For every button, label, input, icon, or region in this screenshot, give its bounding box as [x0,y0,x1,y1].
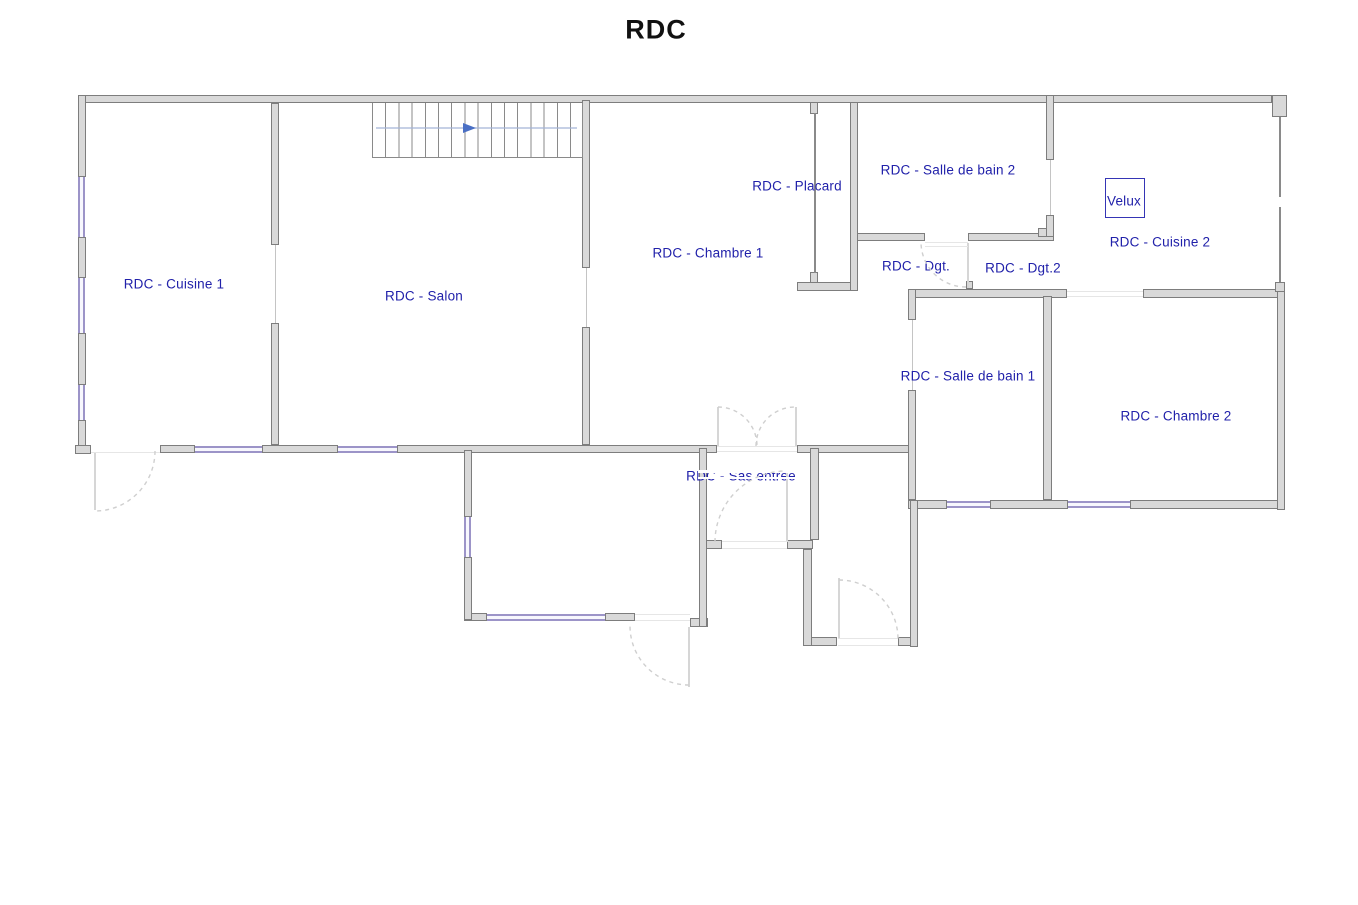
room-label-placard: RDC - Placard [752,179,842,194]
room-label-dgt: RDC - Dgt. [882,259,950,274]
window [464,517,471,557]
page-title: RDC [625,15,687,46]
window [78,385,85,420]
door-leaf-line [838,578,840,638]
wall-segment [75,445,91,454]
threshold-line [1067,296,1143,297]
door-opening-line [586,268,587,327]
wall-segment [1130,500,1285,509]
wall-segment [262,445,338,453]
threshold-line [717,451,797,452]
door-swing-arc [95,451,155,511]
wall-segment [1277,289,1285,510]
door-swing-arc [839,580,898,639]
wall-segment [803,549,812,646]
threshold-line [925,246,968,247]
window [1068,501,1130,508]
door-leaf-line [717,407,719,447]
wall-segment [1275,282,1285,292]
wall-segment [78,95,86,177]
door-swing-arc [756,407,795,446]
wall-segment [464,450,472,517]
threshold-line [838,645,898,646]
door-swing-arc [718,407,757,446]
wall-segment [910,500,918,647]
room-label-cuisine-2: RDC - Cuisine 2 [1110,235,1211,250]
wall-segment [908,289,916,320]
partition-line [1279,207,1281,282]
window [947,501,990,508]
door-opening-line [275,245,276,323]
wall-segment [582,100,590,268]
wall-segment [605,613,635,621]
wall-segment [908,390,916,500]
threshold-line [838,638,898,639]
door-opening-line [1050,160,1051,215]
wall-segment [1043,296,1052,500]
wall-segment [1143,289,1285,298]
wall-segment [1272,95,1287,117]
window [487,614,605,621]
wall-segment [810,272,818,283]
wall-segment [271,103,279,245]
wall-segment [797,282,858,291]
threshold-line [635,614,690,615]
wall-segment [397,445,717,453]
wall-segment [990,500,1068,509]
threshold-line [717,446,797,447]
threshold-line [925,242,968,243]
wall-segment [1046,95,1054,160]
room-label-chambre-2: RDC - Chambre 2 [1120,409,1231,424]
partition-line [1279,117,1281,197]
threshold-line [722,548,787,549]
overlay-line [698,477,802,479]
wall-segment [810,448,819,540]
room-label-salon: RDC - Salon [385,289,463,304]
window [195,446,262,453]
door-leaf-line [688,627,690,687]
door-leaf-line [795,407,797,447]
wall-segment [160,445,195,453]
velux-label: Velux [1107,194,1141,209]
wall-segment [78,95,1272,103]
floor-plan: RDC VeluxRDC - Cuisine 1RDC - SalonRDC -… [0,0,1358,905]
threshold-line [91,452,160,453]
door-swing-arc [630,626,689,685]
threshold-line [1067,291,1143,292]
threshold-line [722,541,787,542]
window [78,177,85,237]
wall-segment [787,540,813,549]
wall-segment [850,102,858,291]
wall-segment [582,327,590,445]
window [78,278,85,333]
wall-segment [271,323,279,445]
room-label-dgt-2: RDC - Dgt.2 [985,261,1061,276]
room-label-salle-de-bain-2: RDC - Salle de bain 2 [881,163,1016,178]
room-label-chambre-1: RDC - Chambre 1 [652,246,763,261]
room-label-cuisine-1: RDC - Cuisine 1 [124,277,225,292]
door-leaf-line [786,471,788,542]
stairs [372,103,583,158]
wall-segment [850,233,925,241]
wall-segment [78,333,86,385]
door-leaf-line [967,243,969,288]
window [338,446,397,453]
wall-segment [464,557,472,620]
overlay-line [698,470,802,473]
room-label-salle-de-bain-1: RDC - Salle de bain 1 [901,369,1036,384]
threshold-line [635,620,690,621]
wall-segment [1046,215,1054,237]
wall-segment [78,237,86,278]
door-leaf-line [94,453,96,510]
